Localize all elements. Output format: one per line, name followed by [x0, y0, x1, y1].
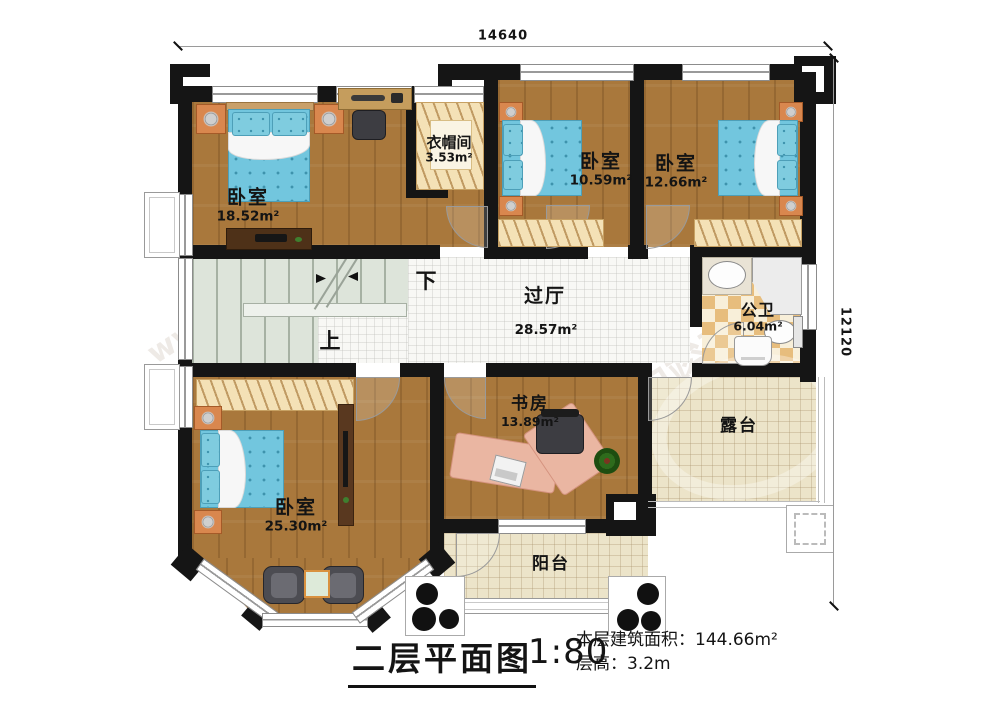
window [498, 519, 586, 534]
balcony-post-inner [614, 502, 636, 520]
exterior-window-box [144, 192, 180, 258]
window [682, 64, 770, 81]
stairs-down-label: 下 [416, 265, 437, 295]
dimension-line-top [178, 46, 828, 47]
plant-icon [594, 448, 620, 474]
window [520, 64, 634, 81]
column-marker [786, 505, 834, 553]
terrace-railing [818, 377, 825, 503]
toilet-tank [793, 316, 803, 348]
wall-middle [628, 245, 648, 259]
room-label-hall: 过厅 [524, 286, 566, 308]
room-label-bedroom-n: 卧室 10.59m² [570, 151, 633, 188]
room-label-balcony: 阳台 [532, 555, 570, 575]
dimension-tick [829, 601, 839, 611]
vanity-icon [338, 88, 412, 110]
desk-icon [226, 228, 312, 250]
plan-title: 二层平面图 [348, 632, 536, 688]
window [414, 86, 484, 103]
nightstand [499, 196, 523, 216]
window [178, 366, 193, 428]
dimension-height: 12120 [838, 307, 853, 357]
hall-floor [408, 257, 690, 363]
window [178, 258, 193, 360]
room-label-bedroom-ne: 卧室 12.66m² [645, 153, 708, 190]
room-label-bedroom-nw: 卧室 18.52m² [217, 187, 280, 224]
side-table-icon [304, 570, 330, 598]
room-label-bedroom-sw: 卧室 25.30m² [265, 497, 328, 534]
dimension-line-right [833, 58, 834, 606]
wall-lower-middle [486, 363, 646, 377]
plan-info-height: 层高：3.2m [576, 653, 778, 677]
column-dots-marker [608, 576, 666, 636]
room-label-bathroom: 公卫 6.04m² [733, 302, 782, 335]
nightstand [194, 510, 222, 534]
wardrobe-icon [498, 219, 604, 247]
washer-icon [734, 336, 772, 366]
exterior-window-box [144, 364, 180, 430]
wall-study-bottom [430, 519, 498, 533]
chair-icon [352, 110, 386, 140]
floor-plan: www.baijz.com 柏竣建筑 www.baijz.com 柏竣建筑 [0, 0, 1000, 706]
room-label-terrace: 露台 [720, 417, 758, 437]
bay-window [262, 613, 368, 627]
plan-info-area: 本层建筑面积：144.66m² [576, 629, 778, 653]
stairs-up-label: 上 [320, 325, 341, 355]
nightstand [779, 196, 803, 216]
room-label-study: 书房 13.89m² [501, 395, 559, 429]
wall-middle [492, 245, 588, 259]
bed-icon [196, 428, 284, 508]
stair-landing-rail [243, 303, 407, 317]
plan-info: 本层建筑面积：144.66m² 层高：3.2m [576, 629, 778, 677]
bed-icon [716, 118, 800, 196]
wall-lower-middle [178, 363, 356, 377]
room-label-hall-area: 28.57m² [515, 323, 578, 339]
armchair-icon [263, 566, 305, 604]
dimension-width: 14640 [478, 29, 528, 44]
room-label-cloakroom: 衣帽间 3.53m² [425, 134, 472, 165]
wall-bedroom-sw-right [430, 363, 444, 563]
nightstand [194, 406, 222, 430]
window [212, 86, 318, 103]
nightstand [196, 104, 226, 134]
column-dots-marker [405, 576, 465, 636]
wardrobe-icon [694, 219, 802, 247]
wall-bathroom-left [690, 245, 702, 327]
window [178, 194, 193, 256]
sink-icon [708, 261, 746, 289]
tv-cabinet-icon [338, 404, 354, 526]
